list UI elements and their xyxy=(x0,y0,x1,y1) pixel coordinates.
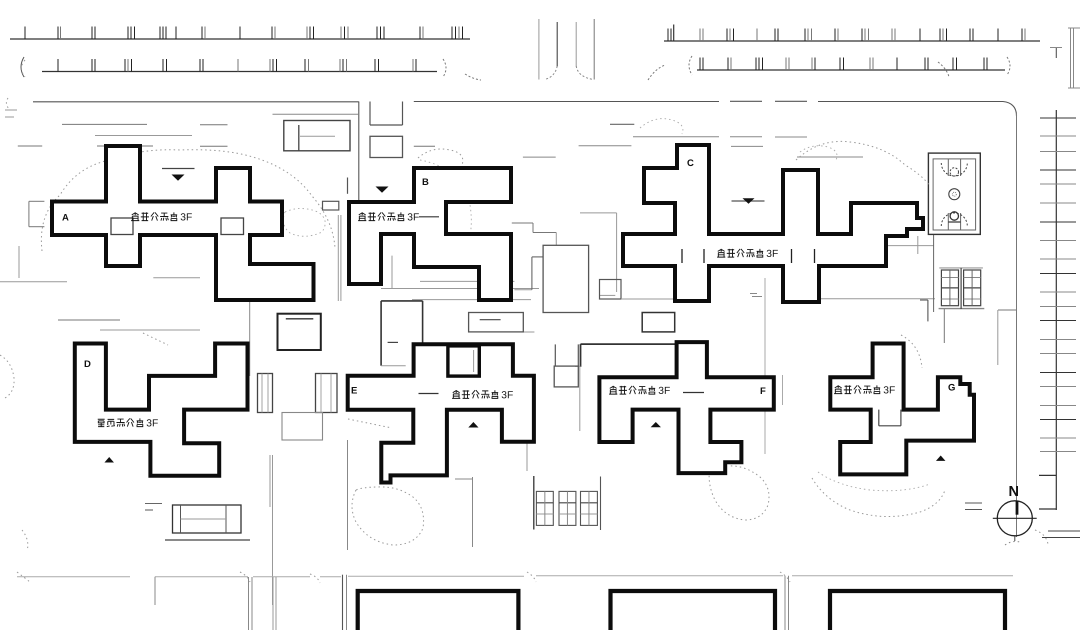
svg-text:3F: 3F xyxy=(766,249,778,260)
svg-text:G: G xyxy=(948,383,955,394)
svg-text:D: D xyxy=(84,359,91,370)
svg-text:C: C xyxy=(687,158,694,169)
svg-text:3F: 3F xyxy=(658,386,670,397)
svg-text:3F: 3F xyxy=(180,212,192,223)
svg-text:F: F xyxy=(760,386,766,397)
svg-text:E: E xyxy=(351,386,357,397)
svg-text:B: B xyxy=(422,177,429,188)
svg-text:A: A xyxy=(62,213,69,224)
svg-text:N: N xyxy=(1008,484,1019,500)
svg-text:3F: 3F xyxy=(407,212,419,223)
svg-text:3F: 3F xyxy=(883,385,895,396)
svg-text:3F: 3F xyxy=(501,390,513,401)
svg-text:3F: 3F xyxy=(146,418,158,429)
